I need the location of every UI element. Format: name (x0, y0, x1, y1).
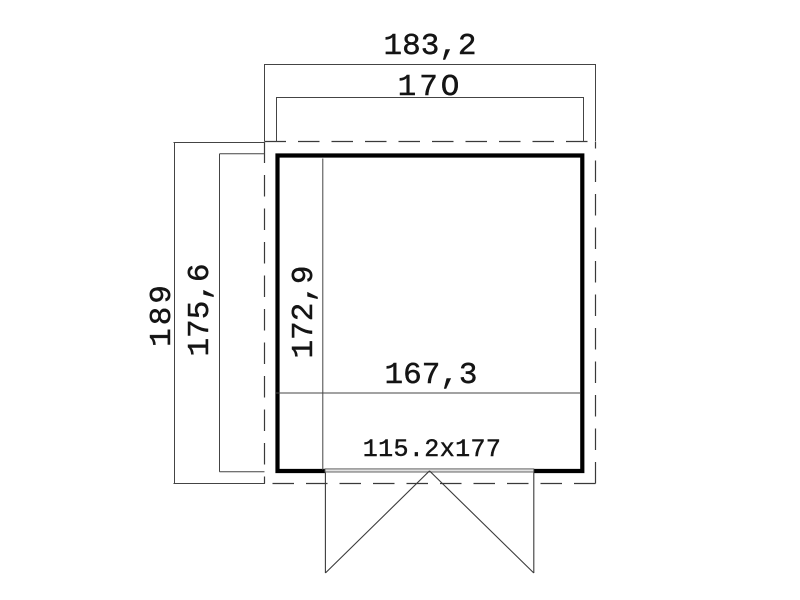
svg-text:167,3: 167,3 (384, 358, 477, 393)
svg-text:183,2: 183,2 (383, 29, 476, 64)
svg-text:189: 189 (145, 282, 180, 347)
svg-text:115.2x177: 115.2x177 (363, 435, 502, 464)
svg-text:175,6: 175,6 (183, 263, 218, 356)
svg-text:172,9: 172,9 (287, 265, 322, 358)
svg-text:17O: 17O (398, 70, 463, 105)
